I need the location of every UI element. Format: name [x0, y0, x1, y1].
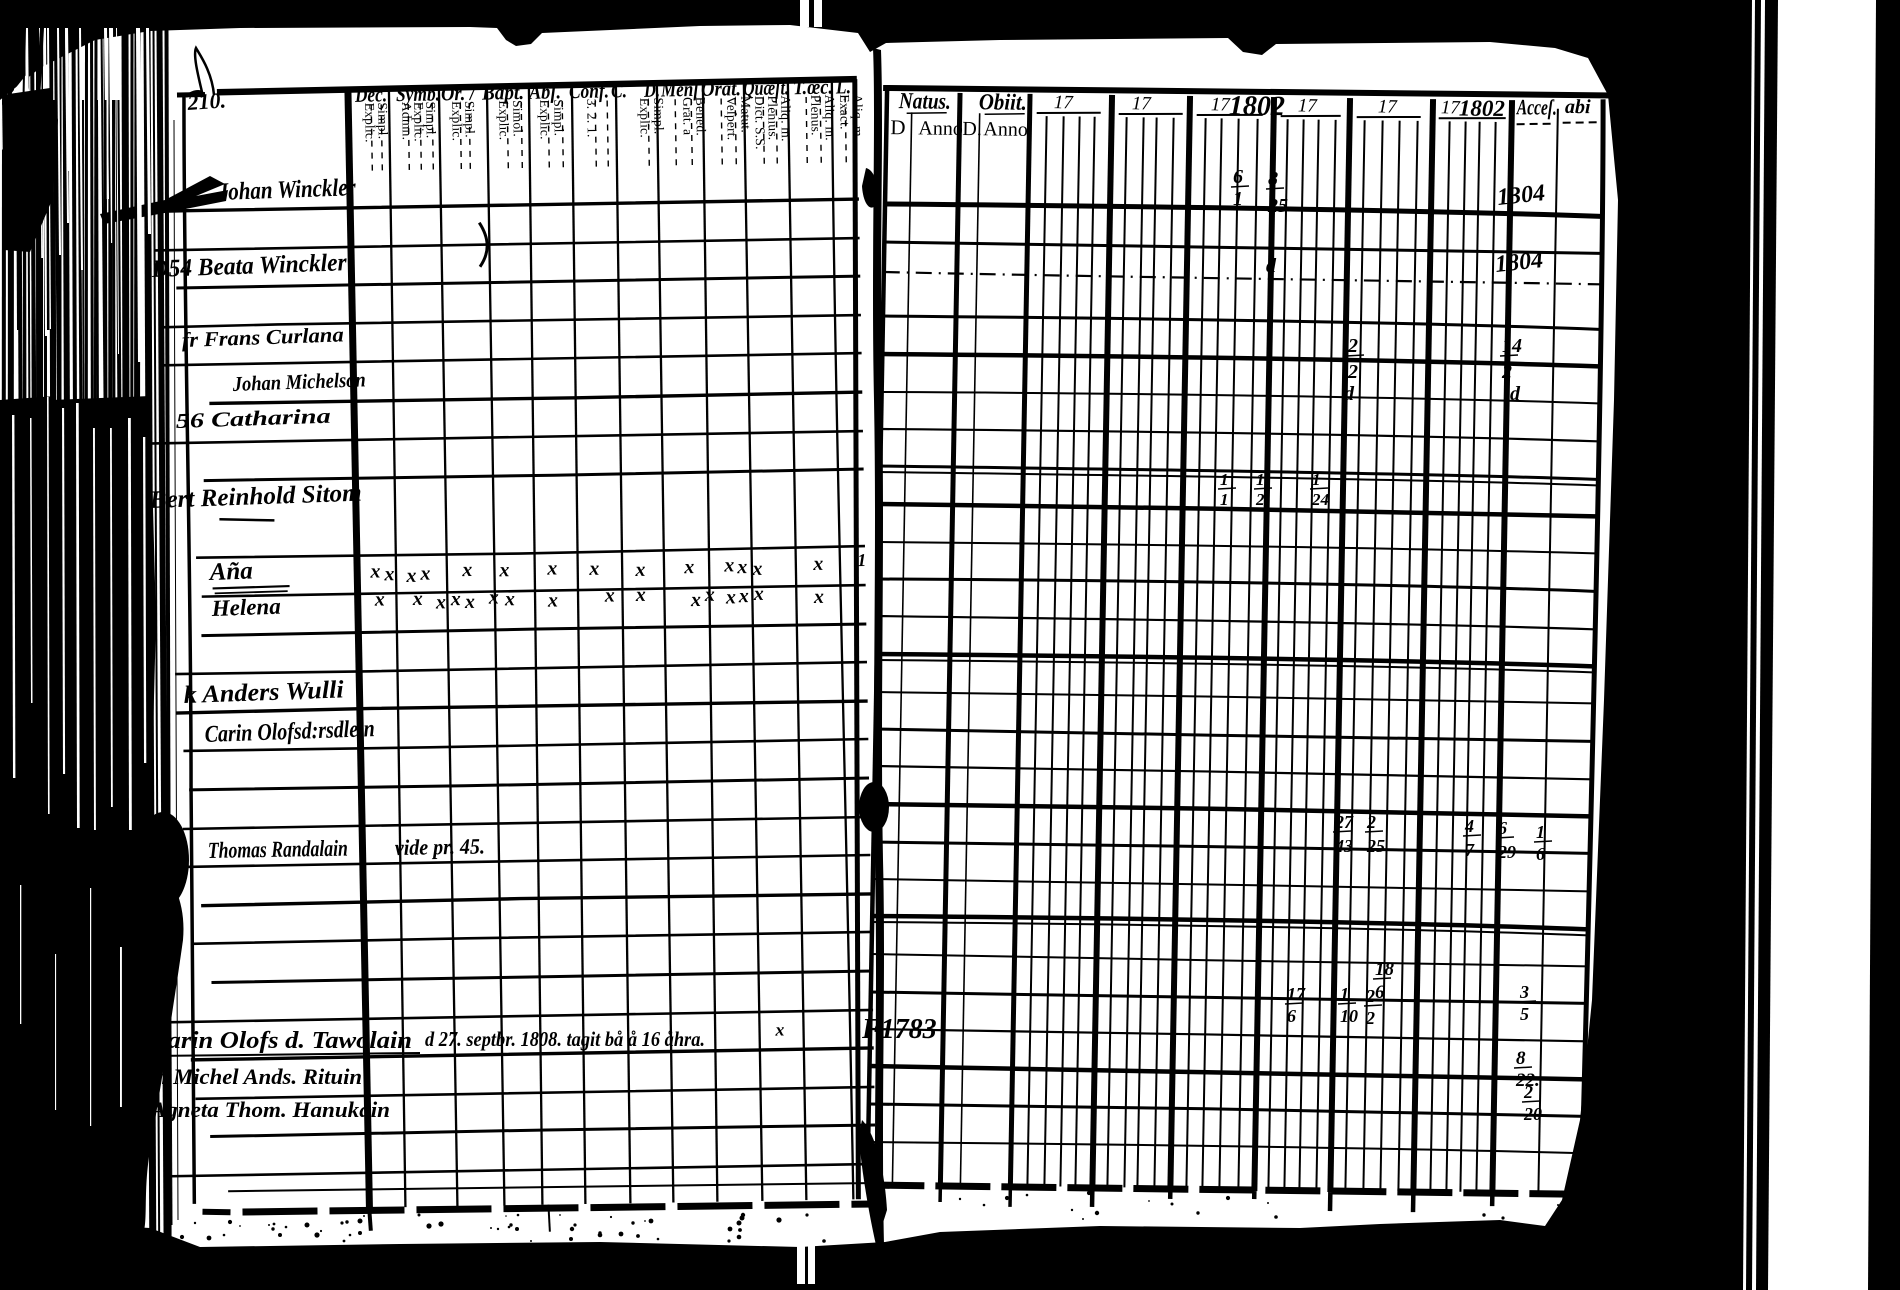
svg-text:Anno.: Anno.	[983, 118, 1033, 141]
svg-text:2: 2	[1347, 335, 1358, 357]
svg-text:210.: 210.	[186, 87, 227, 115]
svg-text:2: 2	[1255, 490, 1265, 509]
svg-text:x: x	[723, 554, 734, 576]
svg-text:x: x	[704, 584, 715, 606]
svg-text:x: x	[812, 553, 823, 575]
svg-text:x: x	[683, 556, 694, 578]
svg-text:C.: C.	[611, 78, 627, 102]
svg-text:Helena: Helena	[210, 594, 281, 621]
svg-text:5: 5	[1520, 1004, 1529, 1024]
svg-text:Simpl.: Simpl.	[551, 99, 567, 136]
svg-text:k Anders Wulli: k Anders Wulli	[183, 676, 344, 709]
svg-text:6: 6	[1233, 166, 1243, 188]
svg-text:x: x	[725, 586, 736, 608]
svg-text:x: x	[383, 563, 394, 585]
svg-text:d: d	[1510, 383, 1521, 405]
svg-text:x: x	[374, 588, 385, 610]
svg-text:17: 17	[1054, 92, 1075, 113]
svg-text:Carin Olofs d. Tawolain: Carin Olofs d. Tawolain	[150, 1028, 412, 1054]
svg-text:x: x	[504, 588, 515, 610]
svg-text:x: x	[405, 565, 416, 587]
svg-text:1: 1	[1220, 470, 1229, 489]
svg-text:1: 1	[1256, 470, 1265, 489]
svg-text:Matut.: Matut.	[738, 96, 754, 133]
svg-text:Natus.: Natus.	[898, 88, 951, 114]
svg-text:17: 17	[1132, 93, 1153, 114]
svg-text:Veſpert.: Veſpert.	[724, 96, 740, 140]
svg-text:x: x	[450, 588, 461, 610]
svg-text:x: x	[634, 559, 645, 581]
svg-text:6: 6	[1498, 818, 1507, 838]
svg-text:8: 8	[1268, 168, 1278, 190]
svg-text:x: x	[751, 558, 762, 580]
svg-text:Simol.: Simol.	[510, 100, 526, 137]
svg-text:6: 6	[1287, 1006, 1296, 1026]
svg-text:Anno: Anno	[918, 117, 963, 140]
svg-text:Explic.: Explic.	[537, 99, 553, 139]
svg-text:d: d	[1344, 383, 1355, 405]
svg-text:Aña: Aña	[207, 558, 253, 587]
svg-text:2: 2	[1347, 361, 1358, 383]
svg-text:x: x	[546, 557, 557, 579]
svg-text:Simpl.: Simpl.	[423, 101, 439, 138]
svg-text:Plenus.: Plenus.	[808, 95, 824, 136]
svg-text:Explic.: Explic.	[637, 98, 653, 138]
svg-text:1802: 1802	[1459, 95, 1505, 121]
svg-text:4: 4	[1464, 816, 1474, 836]
svg-text:2: 2	[1365, 1008, 1375, 1028]
svg-text:x: x	[774, 1020, 784, 1040]
svg-text:1: 1	[1536, 822, 1545, 842]
svg-text:1304: 1304	[1496, 180, 1546, 211]
svg-text:x: x	[488, 586, 499, 608]
svg-text:25: 25	[1267, 195, 1288, 217]
svg-text:abi: abi	[1565, 96, 1591, 118]
svg-text:x: x	[419, 563, 430, 585]
svg-text:F1783: F1783	[861, 1014, 937, 1045]
svg-text:x: x	[813, 586, 824, 608]
svg-text:x: x	[635, 584, 646, 606]
svg-text:1: 1	[1220, 490, 1229, 509]
svg-text:17: 17	[1378, 96, 1399, 117]
svg-text:x: x	[604, 584, 615, 606]
svg-text:Obiit.: Obiit.	[979, 89, 1027, 115]
svg-text:20: 20	[1523, 1104, 1542, 1124]
svg-text:17: 17	[1287, 984, 1306, 1004]
svg-text:43: 43	[1334, 836, 1353, 856]
svg-text:18: 18	[1375, 959, 1395, 980]
svg-text:10: 10	[1340, 1006, 1358, 1026]
svg-text:Explic.: Explic.	[496, 100, 512, 140]
svg-text:7: 7	[1465, 840, 1475, 860]
svg-text:2: 2	[1366, 812, 1376, 832]
svg-text:x: x	[753, 583, 764, 605]
svg-text:x: x	[547, 589, 558, 611]
svg-text:Aliq. m.: Aliq. m.	[778, 95, 794, 141]
svg-text:1: 1	[857, 550, 866, 570]
svg-text:1804: 1804	[1494, 247, 1544, 278]
svg-text:29: 29	[1497, 842, 1516, 862]
svg-text:D.: D.	[962, 118, 982, 140]
svg-text:3: 3	[1519, 982, 1529, 1002]
svg-text:vide pr. 45.: vide pr. 45.	[395, 833, 485, 860]
svg-text:x: x	[738, 585, 749, 607]
svg-text:x: x	[461, 559, 472, 581]
svg-text:8: 8	[1516, 1048, 1526, 1069]
svg-text:x: x	[498, 559, 509, 581]
svg-text:6: 6	[1536, 844, 1545, 864]
svg-text:Thomas Randalain: Thomas Randalain	[208, 836, 348, 863]
svg-text:d: d	[1266, 255, 1277, 277]
svg-text:x: x	[588, 558, 599, 580]
svg-text:D: D	[890, 115, 906, 139]
svg-text:2: 2	[1365, 986, 1375, 1006]
svg-text:Johan Michelson: Johan Michelson	[231, 367, 366, 396]
svg-text:6: 6	[1375, 982, 1385, 1003]
svg-text:2: 2	[1501, 361, 1512, 383]
svg-text:24: 24	[1311, 490, 1329, 509]
svg-text:x: x	[690, 589, 701, 611]
svg-text:17: 17	[1298, 95, 1319, 116]
svg-text:Simpl.: Simpl.	[651, 97, 667, 134]
svg-text:x: x	[736, 556, 747, 578]
svg-text:x: x	[369, 561, 380, 583]
svg-text:Aliq. m.: Aliq. m.	[850, 94, 866, 140]
svg-text:1: 1	[1340, 984, 1349, 1004]
svg-text:d 27. septbr. 1808. tagit bå å: d 27. septbr. 1808. tagit bå å 16 åhra.	[425, 1027, 705, 1051]
svg-text:x: x	[464, 591, 475, 613]
svg-text:Bened.: Bened.	[693, 97, 709, 136]
svg-text:27: 27	[1334, 812, 1354, 832]
svg-text:Simpl.: Simpl.	[375, 102, 391, 139]
svg-text:3. 2. 1.: 3. 2. 1.	[584, 99, 600, 138]
svg-text:2: 2	[1523, 1082, 1533, 1102]
svg-text:1: 1	[1312, 470, 1321, 489]
svg-text:Johan Winckler: Johan Winckler	[216, 174, 356, 206]
svg-text:14: 14	[1502, 335, 1522, 357]
svg-text:1: 1	[1233, 188, 1243, 210]
svg-text:Aliq. m.: Aliq. m.	[822, 94, 838, 140]
svg-text:x: x	[435, 591, 446, 613]
svg-text:1802: 1802	[1229, 90, 1286, 122]
svg-text:25: 25	[1366, 836, 1385, 856]
svg-text:Simpl.: Simpl.	[462, 101, 478, 138]
svg-text:x: x	[412, 588, 423, 610]
svg-text:Acceſ.: Acceſ.	[1515, 94, 1557, 120]
